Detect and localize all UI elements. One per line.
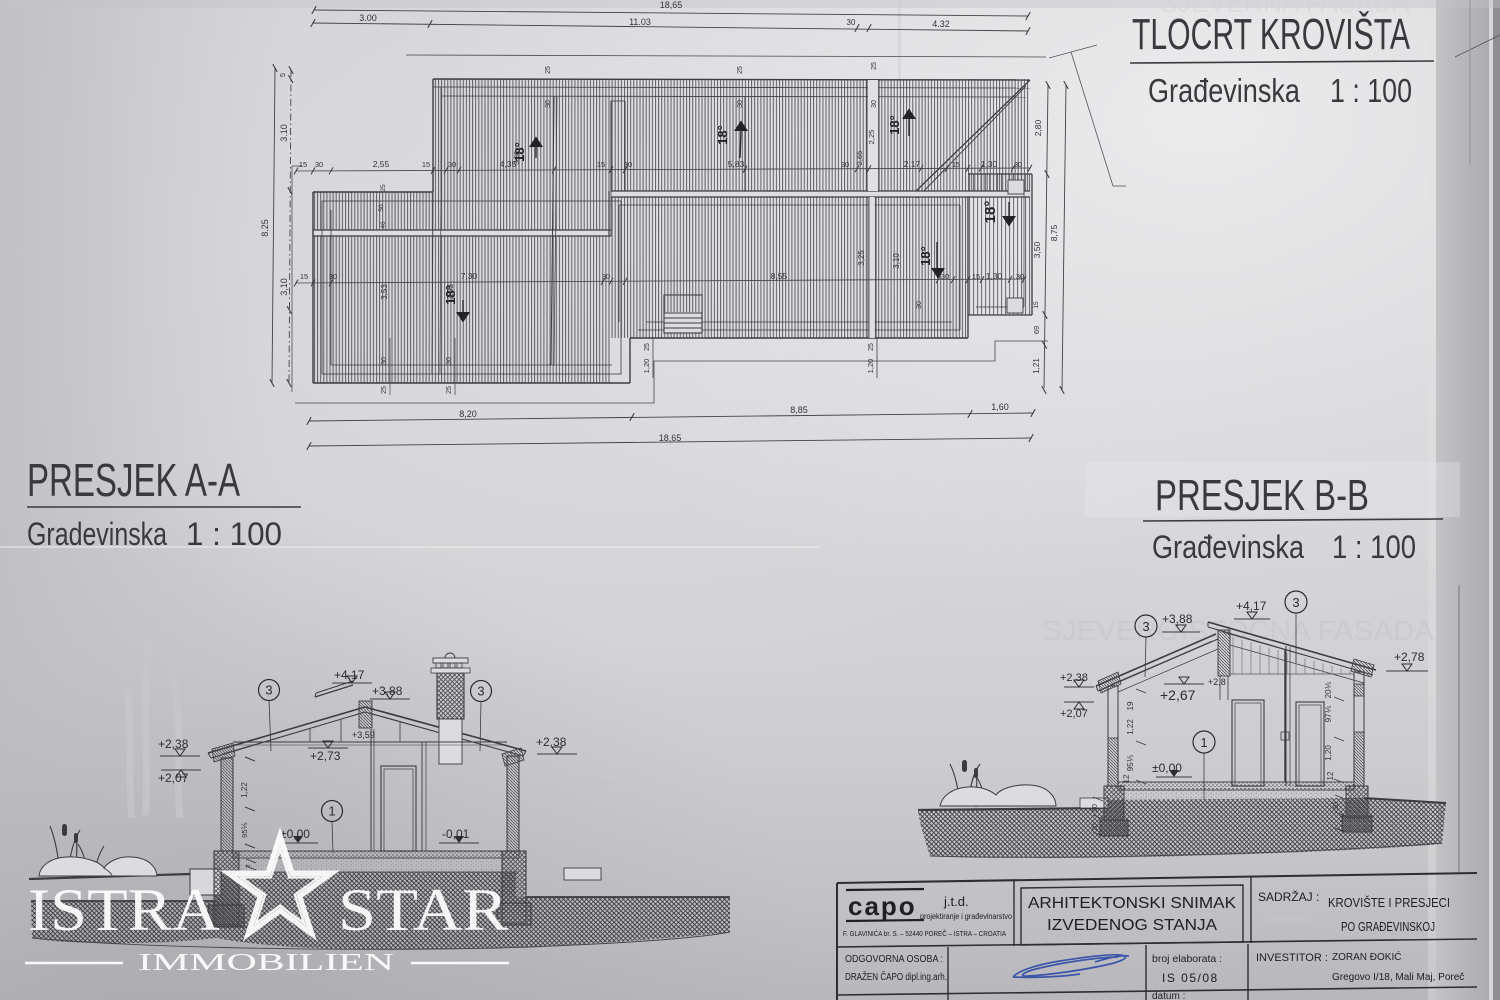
svg-text:15: 15	[1033, 301, 1040, 309]
svg-text:25: 25	[380, 184, 387, 192]
svg-text:+2,07: +2,07	[158, 771, 189, 785]
svg-text:50: 50	[1092, 804, 1099, 812]
svg-text:capo: capo	[848, 891, 917, 921]
svg-text:15: 15	[597, 160, 605, 169]
svg-text:18°: 18°	[918, 246, 933, 266]
svg-text:18°: 18°	[982, 201, 999, 224]
svg-text:18°: 18°	[443, 285, 458, 305]
svg-text:4.32: 4.32	[932, 19, 950, 29]
svg-text:datum :: datum :	[1152, 991, 1185, 1000]
svg-text:1: 1	[1200, 735, 1207, 750]
svg-text:25: 25	[737, 66, 744, 74]
svg-text:50: 50	[1333, 802, 1340, 810]
svg-text:IS 05/08: IS 05/08	[1162, 971, 1219, 985]
svg-text:30: 30	[545, 100, 552, 108]
svg-text:+3,88: +3,88	[372, 684, 403, 698]
svg-text:1: 1	[328, 804, 335, 819]
svg-text:15: 15	[972, 272, 980, 281]
svg-text:±0,00: ±0,00	[1152, 761, 1182, 775]
svg-text:+2,78: +2,78	[1394, 650, 1425, 664]
svg-text:25: 25	[868, 343, 875, 351]
svg-text:30: 30	[1016, 272, 1024, 281]
svg-text:3: 3	[477, 684, 484, 699]
svg-text:18°: 18°	[512, 142, 527, 162]
svg-text:1,20: 1,20	[1324, 745, 1333, 761]
svg-text:25: 25	[381, 386, 388, 394]
svg-text:25: 25	[446, 386, 453, 394]
svg-text:30: 30	[1014, 160, 1022, 169]
svg-text:Gregovo I/18, Mali Maj, Poreč: Gregovo I/18, Mali Maj, Poreč	[1332, 972, 1464, 983]
svg-text:30: 30	[446, 357, 453, 365]
svg-text:1,30: 1,30	[986, 271, 1003, 281]
svg-text:15: 15	[300, 272, 308, 281]
svg-text:2,65: 2,65	[855, 151, 864, 166]
svg-text:-0,01: -0,01	[442, 827, 470, 841]
svg-text:broj elaborata :: broj elaborata :	[1152, 953, 1222, 965]
svg-text:+2,38: +2,38	[536, 735, 567, 749]
svg-text:15: 15	[299, 160, 307, 169]
svg-text:1,22: 1,22	[240, 782, 249, 798]
svg-text:SJEVERO: SJEVERO	[1262, 914, 1314, 926]
svg-text:7,30: 7,30	[461, 271, 478, 281]
svg-text:5: 5	[280, 73, 287, 77]
svg-text:97⅕: 97⅕	[1324, 705, 1333, 722]
svg-text:IMMOBILIEN: IMMOBILIEN	[138, 950, 394, 976]
svg-text:95⅕: 95⅕	[1126, 754, 1135, 771]
svg-text:30: 30	[448, 160, 456, 169]
svg-text:PRESJEK A-A: PRESJEK A-A	[27, 454, 240, 506]
svg-text:3,53: 3,53	[380, 284, 389, 300]
svg-text:30: 30	[916, 301, 923, 309]
svg-text:3: 3	[1292, 595, 1299, 610]
svg-text:15: 15	[422, 160, 430, 169]
svg-text:11.03: 11.03	[629, 17, 651, 27]
svg-text:+4,17: +4,17	[334, 668, 365, 682]
svg-text:5,83: 5,83	[728, 159, 745, 169]
svg-text:30: 30	[624, 160, 632, 169]
svg-text:69: 69	[1032, 326, 1041, 334]
svg-text:8.25: 8.25	[260, 219, 270, 237]
svg-text:1,20: 1,20	[642, 359, 651, 374]
svg-text:3,10: 3,10	[279, 278, 289, 296]
svg-text:PO GRAĐEVINSKOJ: PO GRAĐEVINSKOJ	[1341, 919, 1435, 934]
svg-text:SJEVERNA FASADA: SJEVERNA FASADA	[1160, 0, 1410, 18]
svg-text:IZVEDENOG STANJA: IZVEDENOG STANJA	[1047, 917, 1217, 934]
svg-text:3,10: 3,10	[892, 253, 901, 269]
svg-text:+2,38: +2,38	[1060, 672, 1088, 684]
svg-text:ZORAN ĐOKIĆ: ZORAN ĐOKIĆ	[1332, 950, 1401, 963]
svg-text:2,17: 2,17	[904, 159, 921, 169]
svg-text:3: 3	[1142, 619, 1149, 634]
svg-text:+2,07: +2,07	[1060, 708, 1088, 720]
svg-text:3,50: 3,50	[1032, 241, 1042, 258]
svg-text:12: 12	[1326, 771, 1335, 780]
svg-text:19: 19	[1126, 701, 1135, 710]
svg-text:F. GLAVINIĆA br. S. – 5244: F. GLAVINIĆA br. S. – 52440 POREČ – ISTR…	[843, 929, 1006, 938]
svg-text:STAR: STAR	[338, 877, 508, 943]
svg-text:30: 30	[315, 160, 323, 169]
svg-text:+3,88: +3,88	[1162, 612, 1193, 626]
svg-text:1 : 100: 1 : 100	[186, 516, 282, 552]
svg-text:30: 30	[381, 357, 388, 365]
svg-text:3.00: 3.00	[359, 13, 377, 23]
svg-text:3,25: 3,25	[857, 250, 866, 266]
svg-text:18°: 18°	[887, 115, 902, 135]
svg-text:SADRŽAJ :: SADRŽAJ :	[1258, 889, 1319, 904]
svg-text:1,22: 1,22	[1126, 719, 1135, 735]
svg-text:1,30: 1,30	[981, 159, 998, 169]
svg-text:25: 25	[871, 62, 878, 70]
svg-text:8,55: 8,55	[771, 271, 788, 281]
svg-text:18,65: 18,65	[659, 433, 682, 443]
svg-text:ODGOVORNA OSOBA :: ODGOVORNA OSOBA :	[845, 954, 943, 965]
svg-text:95⅕: 95⅕	[240, 821, 249, 837]
svg-text:20: 20	[1092, 823, 1099, 831]
svg-text:projektiranje i građevinarstvo: projektiranje i građevinarstvo	[920, 912, 1012, 921]
svg-text:18,65: 18,65	[660, 0, 683, 10]
svg-text:8,20: 8,20	[459, 409, 477, 419]
svg-text:46: 46	[380, 221, 387, 229]
svg-text:Gradevinska: Gradevinska	[27, 516, 167, 552]
svg-text:30: 30	[841, 160, 849, 169]
svg-text:15: 15	[952, 160, 960, 169]
svg-text:ARHITEKTONSKI SNIMAK: ARHITEKTONSKI SNIMAK	[1028, 895, 1236, 912]
svg-text:30: 30	[329, 272, 337, 281]
svg-text:30: 30	[941, 272, 949, 281]
svg-text:DRAŽEN ČAPO dipl.ing.arh.: DRAŽEN ČAPO dipl.ing.arh.	[845, 970, 947, 983]
svg-text:2,80: 2,80	[1033, 119, 1043, 136]
svg-text:30: 30	[737, 100, 744, 108]
svg-text:25: 25	[545, 66, 552, 74]
svg-text:Građevinska: Građevinska	[1148, 72, 1301, 109]
svg-text:30: 30	[602, 272, 610, 281]
svg-text:3.10: 3.10	[279, 124, 289, 142]
svg-text:Građevinska: Građevinska	[1152, 529, 1304, 565]
svg-text:+2,67: +2,67	[1160, 687, 1196, 703]
svg-text:8,75: 8,75	[1049, 224, 1059, 241]
svg-text:+4,17: +4,17	[1236, 599, 1267, 613]
svg-text:PRESJEK B-B: PRESJEK B-B	[1155, 471, 1369, 520]
svg-text:+2,8: +2,8	[1208, 677, 1226, 687]
svg-text:1 : 100: 1 : 100	[1332, 529, 1416, 565]
svg-text:j.t.d.: j.t.d.	[943, 894, 969, 909]
svg-text:3: 3	[265, 683, 272, 698]
svg-text:2,25: 2,25	[867, 130, 876, 145]
svg-text:30: 30	[847, 18, 856, 27]
svg-text:30: 30	[871, 100, 878, 108]
svg-text:INVESTITOR :: INVESTITOR :	[1256, 952, 1328, 964]
svg-text:ISTRA: ISTRA	[28, 877, 220, 943]
svg-text:25: 25	[644, 343, 651, 351]
svg-text:+2,38: +2,38	[158, 737, 189, 751]
svg-text:+2,73: +2,73	[310, 749, 341, 763]
svg-text:18°: 18°	[715, 125, 730, 145]
svg-text:±0,00: ±0,00	[280, 827, 310, 841]
svg-text:50: 50	[378, 204, 385, 212]
svg-text:1,21: 1,21	[1032, 358, 1041, 374]
svg-text:1,60: 1,60	[991, 402, 1009, 412]
svg-text:20⅕: 20⅕	[1324, 681, 1333, 698]
svg-text:1,20: 1,20	[866, 359, 875, 374]
svg-text:2,55: 2,55	[373, 159, 390, 169]
svg-text:8,85: 8,85	[790, 405, 808, 415]
svg-text:KROVIŠTE I PRESJECI: KROVIŠTE I PRESJECI	[1328, 895, 1450, 910]
svg-text:1 : 100: 1 : 100	[1330, 72, 1412, 109]
